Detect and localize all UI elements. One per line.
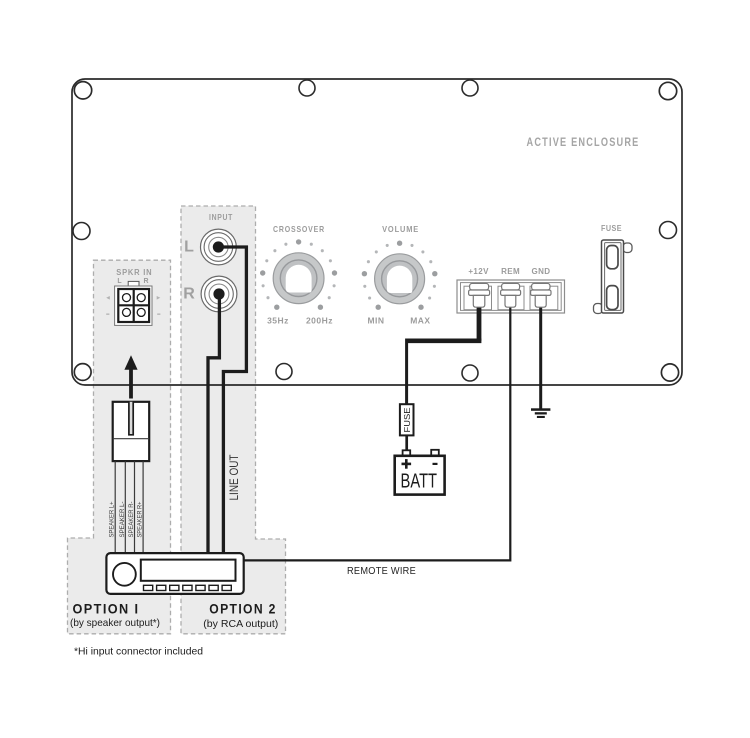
svg-text:OPTION I: OPTION I — [73, 601, 140, 616]
svg-text:SPEAKER L+: SPEAKER L+ — [110, 501, 116, 537]
svg-text:MIN: MIN — [367, 316, 384, 326]
svg-text:(by RCA output): (by RCA output) — [203, 618, 278, 630]
svg-text:*Hi input connector included: *Hi input connector included — [74, 645, 203, 657]
svg-text:REMOTE WIRE: REMOTE WIRE — [347, 566, 416, 577]
svg-text:200Hz: 200Hz — [306, 316, 333, 326]
svg-text:R: R — [143, 278, 148, 285]
svg-text:+12V: +12V — [468, 267, 489, 276]
svg-text:INPUT: INPUT — [209, 213, 233, 222]
svg-text:ACTIVE ENCLOSURE: ACTIVE ENCLOSURE — [527, 137, 640, 149]
svg-text:FUSE: FUSE — [403, 408, 412, 433]
svg-text:35Hz: 35Hz — [267, 316, 289, 326]
svg-text:L: L — [117, 278, 122, 285]
svg-text:SPEAKER L-: SPEAKER L- — [120, 502, 126, 538]
svg-text:REM: REM — [501, 267, 520, 276]
svg-text:OPTION 2: OPTION 2 — [209, 601, 276, 616]
svg-text:(by speaker output*): (by speaker output*) — [70, 617, 160, 629]
svg-text:FUSE: FUSE — [601, 224, 622, 233]
svg-text:L: L — [184, 239, 194, 256]
svg-text:LINE OUT: LINE OUT — [227, 454, 241, 501]
svg-text:BATT: BATT — [401, 471, 438, 493]
svg-text:SPEAKER R+: SPEAKER R+ — [138, 501, 144, 537]
svg-text:R: R — [183, 286, 195, 303]
svg-text:MAX: MAX — [410, 316, 430, 326]
svg-text:CROSSOVER: CROSSOVER — [273, 224, 325, 234]
svg-text:GND: GND — [532, 267, 551, 276]
svg-text:SPEAKER R-: SPEAKER R- — [129, 501, 135, 537]
svg-text:VOLUME: VOLUME — [382, 224, 419, 234]
svg-text:SPKR IN: SPKR IN — [116, 268, 152, 277]
